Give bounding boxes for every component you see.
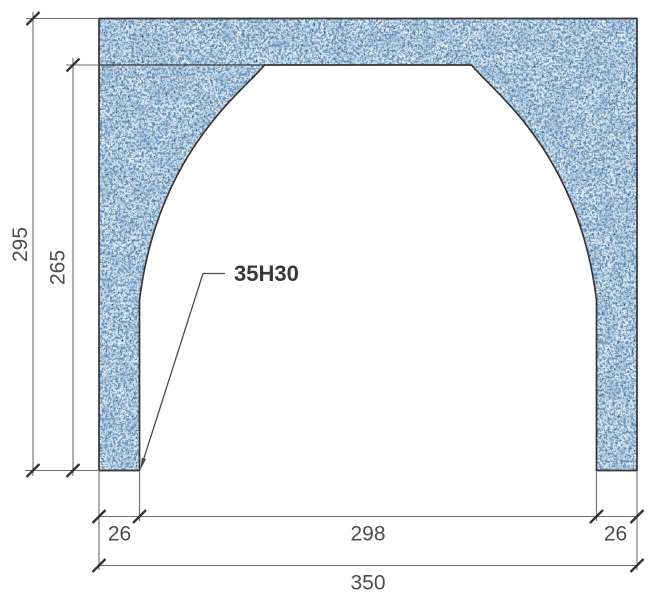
material-texture: [90, 10, 650, 480]
dimension-overall-width: 350: [93, 559, 644, 594]
callout: 35H30: [140, 261, 299, 470]
dimension-row-widths: 26 298 26: [93, 510, 644, 546]
bottom-extension-lines: [99, 472, 637, 571]
leader-line: [141, 274, 225, 467]
dimension-overall-height: 295: [9, 12, 99, 477]
dimension-value: 265: [47, 250, 70, 285]
material-speckle-dark-layer: [90, 10, 650, 480]
section-drawing: 295 265 26 298 26 350 35H30: [0, 0, 660, 594]
dimension-opening-height: 265: [47, 58, 100, 477]
leader-arrowhead: [140, 458, 146, 470]
dimension-value: 298: [350, 523, 385, 546]
dimension-value: 295: [9, 227, 32, 262]
dimension-value: 350: [350, 572, 385, 594]
callout-label: 35H30: [234, 261, 299, 286]
dimension-value: 26: [604, 523, 627, 546]
dimension-value: 26: [108, 523, 131, 546]
